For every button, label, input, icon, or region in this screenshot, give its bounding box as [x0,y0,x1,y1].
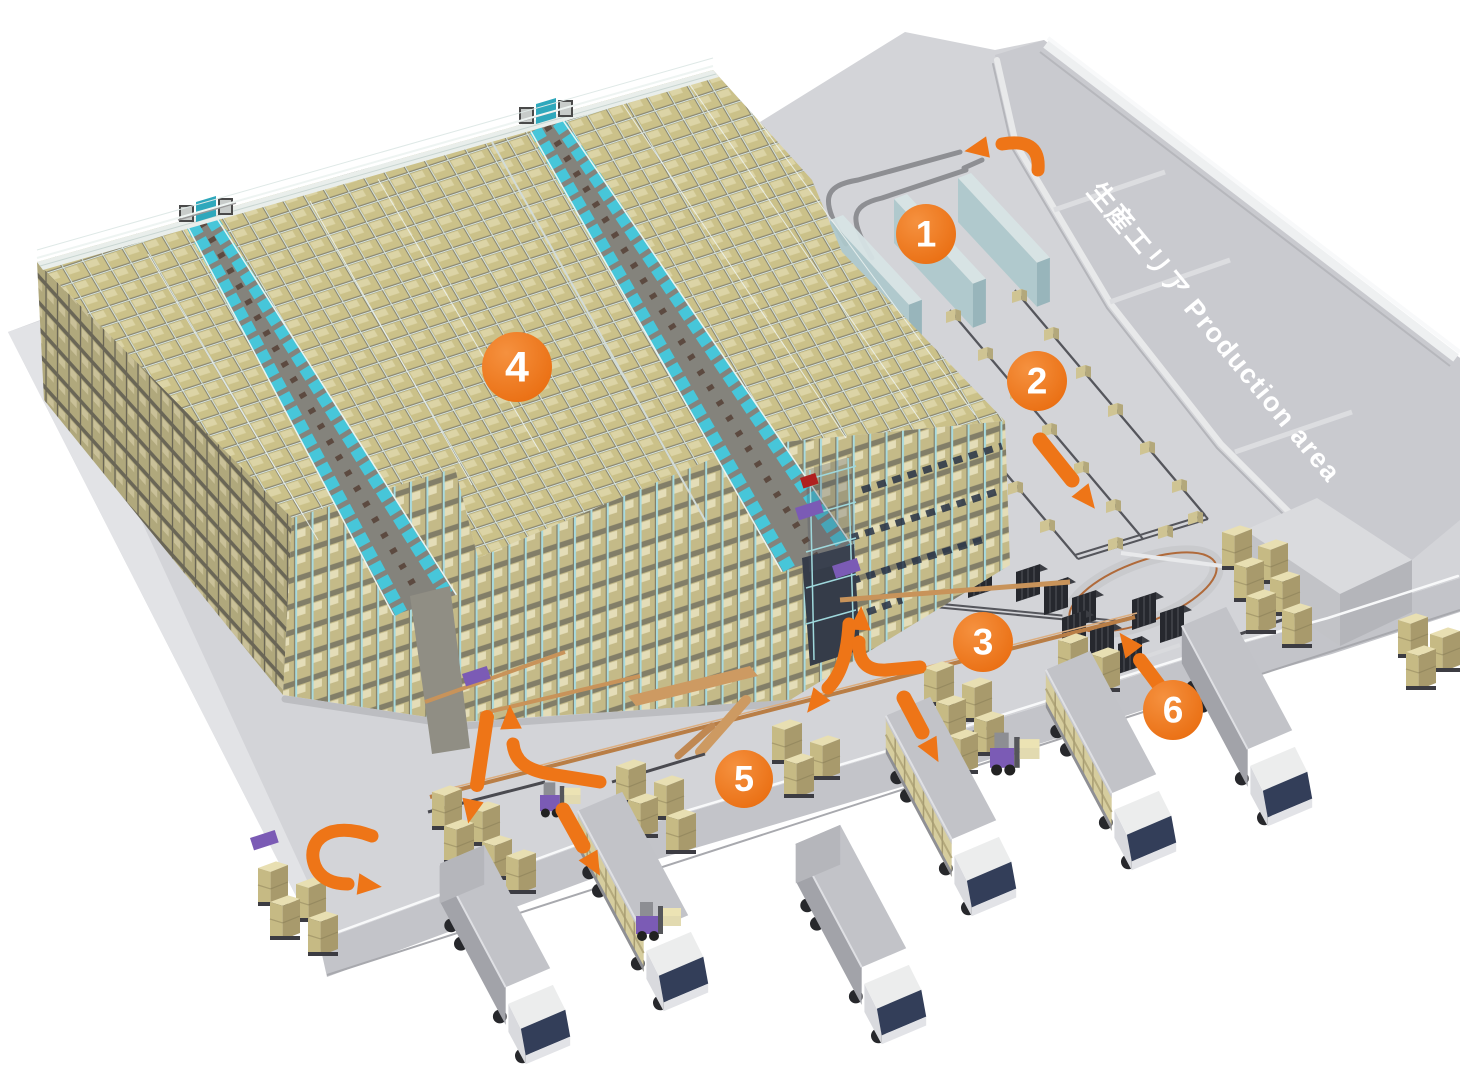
svg-text:4: 4 [505,344,529,392]
svg-text:1: 1 [916,214,937,255]
svg-text:3: 3 [973,622,994,663]
svg-text:6: 6 [1163,690,1184,731]
svg-text:2: 2 [1027,361,1048,402]
svg-text:5: 5 [734,758,754,799]
